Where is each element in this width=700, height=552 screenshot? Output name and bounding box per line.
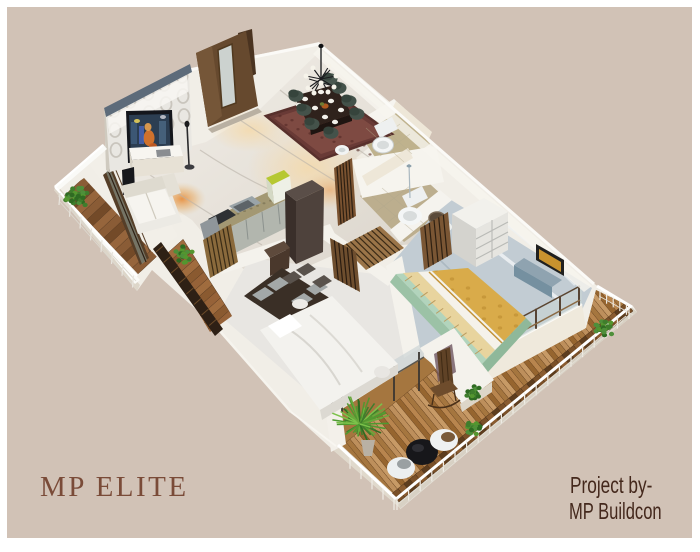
svg-text:MP ELITE: MP ELITE — [40, 471, 189, 503]
svg-text:MP Buildcon: MP Buildcon — [569, 499, 662, 524]
svg-text:Project by-: Project by- — [570, 474, 652, 499]
